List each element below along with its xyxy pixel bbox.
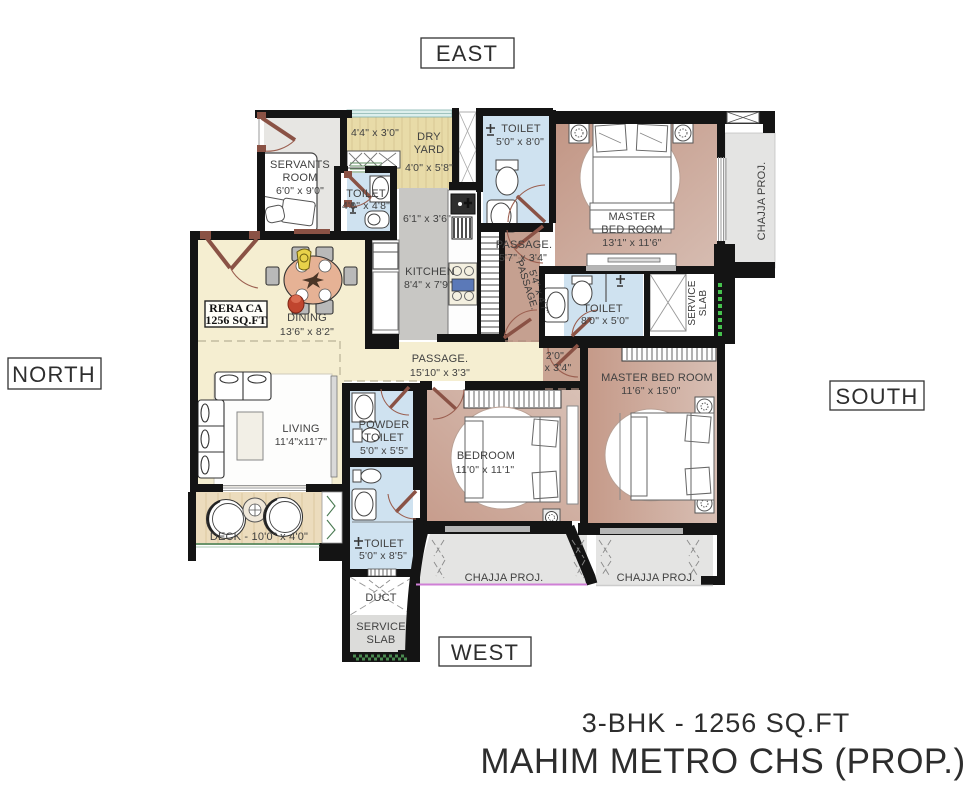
svg-text:2'0": 2'0" <box>546 350 564 362</box>
svg-text:MAHIM METRO CHS (PROP.): MAHIM METRO CHS (PROP.) <box>480 742 965 781</box>
svg-text:MASTER: MASTER <box>608 211 655 223</box>
svg-text:ROOM: ROOM <box>282 172 317 184</box>
svg-text:BED ROOM: BED ROOM <box>601 224 663 236</box>
svg-text:SLAB: SLAB <box>698 290 709 317</box>
svg-text:PASSAGE.: PASSAGE. <box>496 239 552 251</box>
svg-text:NORTH: NORTH <box>12 362 96 387</box>
svg-text:SLAB: SLAB <box>367 634 396 646</box>
svg-text:13'1" x 11'6": 13'1" x 11'6" <box>602 237 661 249</box>
svg-text:1256 SQ.FT: 1256 SQ.FT <box>205 313 266 327</box>
svg-text:x 3'4": x 3'4" <box>545 362 572 374</box>
svg-text:8'4" x 7'9": 8'4" x 7'9" <box>404 279 452 291</box>
svg-text:TOILET: TOILET <box>583 303 623 315</box>
svg-text:11'0" x 11'1": 11'0" x 11'1" <box>456 464 515 476</box>
svg-text:SOUTH: SOUTH <box>836 384 919 409</box>
svg-text:EAST: EAST <box>436 41 498 66</box>
svg-text:CHAJJA PROJ.: CHAJJA PROJ. <box>756 162 768 241</box>
svg-text:4'4" x 3'0": 4'4" x 3'0" <box>351 127 399 139</box>
svg-text:BEDROOM: BEDROOM <box>457 450 515 462</box>
svg-text:5'0" x 5'5": 5'0" x 5'5" <box>360 445 408 457</box>
svg-text:15'10" x 3'3": 15'10" x 3'3" <box>410 367 470 379</box>
svg-text:TOILET: TOILET <box>501 123 541 135</box>
svg-text:POWDER: POWDER <box>359 419 410 431</box>
svg-text:11'6" x 15'0": 11'6" x 15'0" <box>621 385 680 397</box>
svg-text:WEST: WEST <box>451 640 519 665</box>
svg-text:6'1" x 3'6": 6'1" x 3'6" <box>403 213 451 225</box>
svg-text:6'0" x 9'0": 6'0" x 9'0" <box>276 185 324 197</box>
svg-text:PASSAGE.: PASSAGE. <box>412 353 468 365</box>
svg-text:TOILET: TOILET <box>364 432 404 444</box>
svg-text:8'0" x 5'0": 8'0" x 5'0" <box>581 315 629 327</box>
svg-text:MASTER BED ROOM: MASTER BED ROOM <box>601 372 713 384</box>
svg-text:DECK - 10'0" x 4'0": DECK - 10'0" x 4'0" <box>210 531 308 543</box>
svg-text:13'6" x 8'2": 13'6" x 8'2" <box>280 326 334 338</box>
svg-text:SERVICE: SERVICE <box>687 280 698 325</box>
svg-text:DRY: DRY <box>417 131 441 143</box>
svg-text:LIVING: LIVING <box>282 423 319 435</box>
svg-text:11'4"x11'7": 11'4"x11'7" <box>275 436 327 448</box>
svg-text:CHAJJA PROJ.: CHAJJA PROJ. <box>617 572 696 584</box>
svg-text:YARD: YARD <box>414 144 445 156</box>
svg-text:TOILET: TOILET <box>346 188 386 200</box>
svg-text:SERVANTS: SERVANTS <box>270 159 330 171</box>
svg-text:TOILET: TOILET <box>364 538 404 550</box>
svg-text:SERVICE: SERVICE <box>356 621 406 633</box>
svg-text:CHAJJA PROJ.: CHAJJA PROJ. <box>465 572 544 584</box>
svg-text:DINING: DINING <box>287 312 327 324</box>
svg-text:5'0" x 8'0": 5'0" x 8'0" <box>496 136 544 148</box>
svg-text:4'0" x 5'8": 4'0" x 5'8" <box>405 162 453 174</box>
svg-text:5'0" x 8'5": 5'0" x 8'5" <box>359 550 407 562</box>
svg-text:KITCHEN: KITCHEN <box>405 266 455 278</box>
svg-text:4'0" x 4'8": 4'0" x 4'8" <box>342 200 390 212</box>
svg-text:DUCT: DUCT <box>365 592 396 604</box>
svg-text:3-BHK - 1256 SQ.FT: 3-BHK - 1256 SQ.FT <box>582 708 851 738</box>
